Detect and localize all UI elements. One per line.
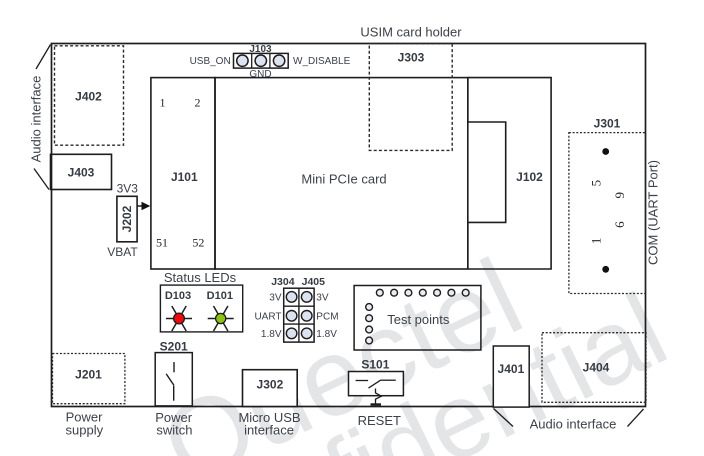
svg-text:J402: J402 xyxy=(75,89,102,103)
svg-text:52: 52 xyxy=(192,236,204,250)
svg-text:5: 5 xyxy=(588,180,603,187)
svg-text:J405: J405 xyxy=(302,276,326,288)
svg-text:switch: switch xyxy=(156,423,192,438)
svg-text:J303: J303 xyxy=(398,50,425,64)
svg-text:GND: GND xyxy=(249,69,271,80)
svg-text:1.8V: 1.8V xyxy=(261,329,282,340)
svg-text:Audio interface: Audio interface xyxy=(530,417,617,432)
svg-text:VBAT: VBAT xyxy=(107,245,138,259)
svg-text:2: 2 xyxy=(195,96,201,110)
svg-text:Status LEDs: Status LEDs xyxy=(164,270,237,285)
svg-text:COM (UART Port): COM (UART Port) xyxy=(646,160,661,265)
svg-text:J101: J101 xyxy=(171,170,198,184)
svg-text:J304: J304 xyxy=(271,276,295,288)
svg-text:PCM: PCM xyxy=(316,311,338,322)
svg-text:J202: J202 xyxy=(120,205,134,232)
svg-text:1: 1 xyxy=(160,96,166,110)
svg-text:S101: S101 xyxy=(361,357,389,371)
svg-text:D101: D101 xyxy=(207,290,233,302)
svg-text:J201: J201 xyxy=(75,368,102,382)
svg-text:USB_ON: USB_ON xyxy=(190,56,231,67)
svg-text:J302: J302 xyxy=(257,377,284,391)
svg-text:Audio interface: Audio interface xyxy=(29,76,44,163)
svg-text:6: 6 xyxy=(612,221,627,228)
svg-text:9: 9 xyxy=(612,192,627,199)
svg-text:D103: D103 xyxy=(165,290,191,302)
svg-text:51: 51 xyxy=(156,236,168,250)
svg-text:RESET: RESET xyxy=(358,413,401,428)
svg-text:J301: J301 xyxy=(594,116,621,130)
svg-text:J404: J404 xyxy=(583,360,610,374)
svg-text:supply: supply xyxy=(66,423,104,438)
svg-text:3V3: 3V3 xyxy=(117,182,139,196)
svg-text:Mini PCIe card: Mini PCIe card xyxy=(301,171,386,186)
svg-text:J401: J401 xyxy=(498,362,525,376)
svg-text:J102: J102 xyxy=(516,170,543,184)
svg-text:UART: UART xyxy=(254,311,281,322)
svg-text:1: 1 xyxy=(588,238,603,245)
svg-text:W_DISABLE: W_DISABLE xyxy=(293,56,351,67)
svg-text:USIM card holder: USIM card holder xyxy=(360,25,462,40)
svg-text:1.8V: 1.8V xyxy=(316,329,337,340)
svg-text:Test points: Test points xyxy=(387,312,450,327)
svg-text:interface: interface xyxy=(244,423,294,438)
svg-text:3V: 3V xyxy=(269,292,282,303)
svg-text:S201: S201 xyxy=(160,339,188,353)
svg-text:J403: J403 xyxy=(68,165,95,179)
svg-text:3V: 3V xyxy=(316,292,329,303)
